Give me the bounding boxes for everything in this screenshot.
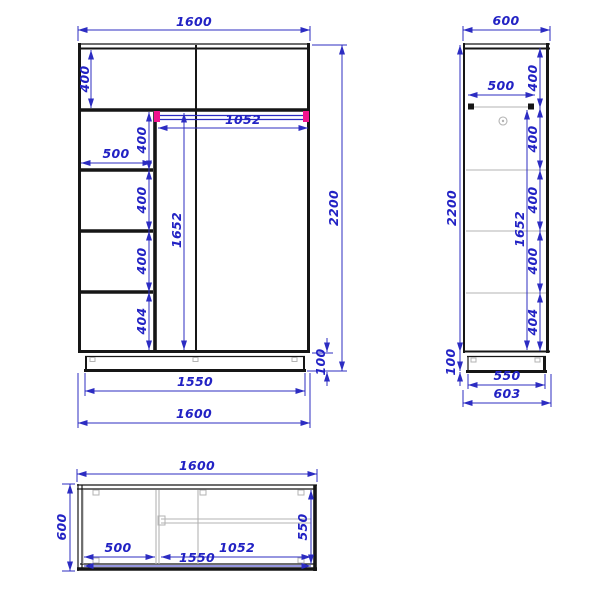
- corner-bracket: [93, 558, 99, 563]
- rod-end-cap: [303, 111, 309, 122]
- dim-front-inner-height: 1652: [169, 113, 184, 350]
- dim-label: 400: [525, 65, 540, 93]
- dim-label: 1550: [177, 374, 213, 389]
- dim-top-inner-depth: 550: [295, 490, 311, 564]
- plinth-bracket: [535, 358, 540, 362]
- dim-front-plinth-height: 100: [312, 338, 333, 386]
- dim-label: 500: [105, 540, 132, 555]
- wardrobe-technical-drawing: 1600 400 1052 500 400 400 400 404 1652: [0, 0, 600, 600]
- dim-label: 2200: [326, 190, 341, 226]
- dim-label: 400: [134, 248, 149, 276]
- dim-side-height: 2200: [444, 45, 460, 371]
- dim-label: 1550: [179, 550, 215, 565]
- dim-label: 1652: [512, 211, 527, 247]
- top-view: 1600 600 500 1052 1550 550: [54, 458, 317, 571]
- front-plinth: [84, 356, 306, 371]
- dim-label: 1600: [176, 406, 212, 421]
- rod-end-cap: [154, 111, 160, 122]
- corner-bracket: [298, 490, 304, 495]
- dim-label: 400: [134, 127, 149, 155]
- dim-label: 100: [313, 349, 328, 376]
- plinth-bracket: [471, 358, 476, 362]
- dim-label: 1600: [179, 458, 215, 473]
- dim-front-inner-width: 1550: [85, 373, 305, 396]
- dim-top-depth: 600: [54, 484, 75, 571]
- dim-label: 2200: [444, 190, 459, 226]
- dim-front-height: 2200: [307, 45, 347, 371]
- dim-front-width-top: 1600: [78, 14, 310, 41]
- dim-label: 1052: [225, 112, 261, 127]
- plinth-bracket: [292, 358, 297, 362]
- dim-side-depth-top: 600: [463, 13, 550, 41]
- dim-top-width: 1600: [77, 458, 317, 482]
- front-carcass: [78, 43, 310, 353]
- rod-bracket: [528, 104, 534, 110]
- dim-label: 550: [494, 368, 521, 383]
- dim-label: 1052: [219, 540, 255, 555]
- dim-label: 500: [103, 146, 130, 161]
- dim-side-plinth-height: 100: [443, 338, 460, 386]
- corner-bracket: [93, 490, 99, 495]
- dim-label: 603: [494, 386, 521, 401]
- corner-bracket: [200, 490, 206, 495]
- dim-label: 100: [443, 349, 458, 376]
- plinth-bracket: [90, 358, 95, 362]
- dim-label: 1600: [176, 14, 212, 29]
- plinth-bracket: [193, 358, 198, 362]
- dim-top-col-width: 500: [84, 540, 155, 557]
- front-view: 1600 400 1052 500 400 400 400 404 1652: [77, 14, 347, 428]
- dim-label: 400: [77, 66, 92, 94]
- dim-label: 600: [493, 13, 520, 28]
- side-view: 600 500 400 400 400 400 404 1652 2200: [443, 13, 551, 407]
- dim-label: 1652: [169, 212, 184, 248]
- dim-label: 500: [488, 78, 515, 93]
- dim-label: 550: [295, 514, 310, 541]
- dim-label: 400: [134, 187, 149, 215]
- dim-label: 600: [54, 514, 69, 541]
- rod-bracket: [468, 104, 474, 110]
- cam-fitting-center: [502, 120, 504, 122]
- dim-label: 404: [134, 308, 149, 336]
- corner-bracket: [298, 558, 304, 563]
